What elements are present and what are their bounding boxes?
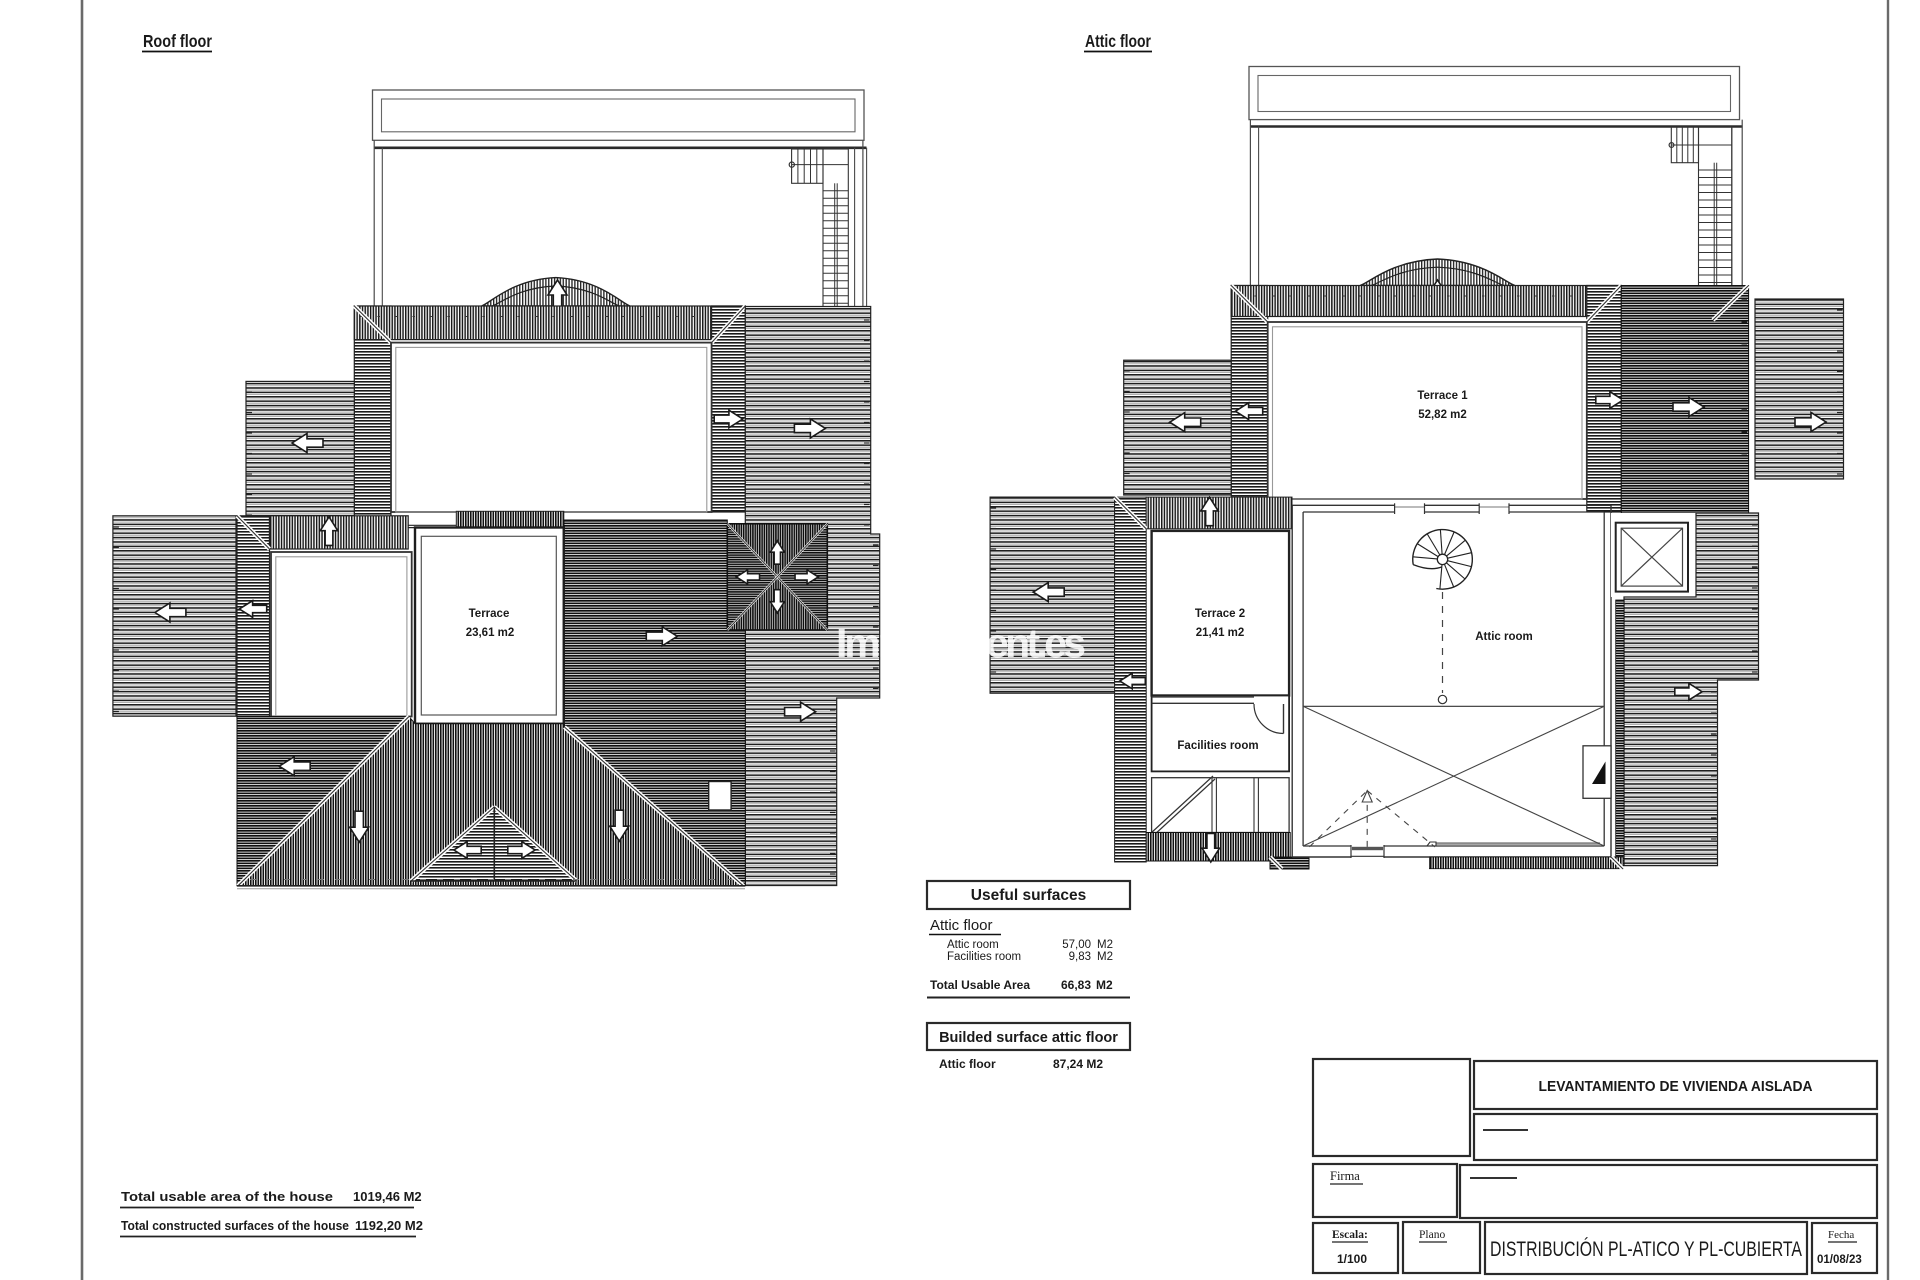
svg-text:Fecha: Fecha bbox=[1828, 1229, 1854, 1241]
svg-text:Useful surfaces: Useful surfaces bbox=[971, 887, 1086, 904]
svg-text:Terrace 2: Terrace 2 bbox=[1195, 608, 1245, 620]
svg-text:Total Usable Area: Total Usable Area bbox=[930, 978, 1030, 992]
svg-text:ent.es: ent.es bbox=[986, 620, 1086, 666]
svg-text:01/08/23: 01/08/23 bbox=[1817, 1254, 1862, 1266]
svg-text:Escala:: Escala: bbox=[1332, 1229, 1368, 1241]
svg-text:52,82 m2: 52,82 m2 bbox=[1418, 409, 1467, 421]
svg-text:Terrace: Terrace bbox=[469, 608, 510, 620]
svg-text:Immo: Immo bbox=[836, 620, 936, 666]
svg-text:Terrace 1: Terrace 1 bbox=[1417, 390, 1468, 402]
svg-text:Total usable area of the house: Total usable area of the house bbox=[121, 1190, 333, 1204]
svg-text:21,41 m2: 21,41 m2 bbox=[1196, 627, 1245, 639]
svg-text:Plano: Plano bbox=[1419, 1229, 1445, 1241]
svg-text:DISTRIBUCIÓN PL-ATICO Y PL-CUB: DISTRIBUCIÓN PL-ATICO Y PL-CUBIERTA bbox=[1490, 1238, 1802, 1261]
svg-text:66,83: 66,83 bbox=[1061, 978, 1091, 992]
svg-text:Attic room: Attic room bbox=[947, 939, 999, 951]
svg-text:M2: M2 bbox=[1097, 951, 1113, 963]
svg-text:LEVANTAMIENTO DE VIVIENDA AISL: LEVANTAMIENTO DE VIVIENDA AISLADA bbox=[1539, 1078, 1813, 1095]
svg-text:Facilities room: Facilities room bbox=[947, 951, 1021, 963]
svg-text:M2: M2 bbox=[1097, 939, 1113, 951]
svg-text:Attic room: Attic room bbox=[1475, 631, 1533, 643]
svg-text:Firma: Firma bbox=[1330, 1169, 1360, 1183]
svg-text:57,00: 57,00 bbox=[1062, 939, 1091, 951]
svg-text:M2: M2 bbox=[1096, 978, 1113, 992]
svg-text:1192,20 M2: 1192,20 M2 bbox=[355, 1218, 423, 1233]
svg-text:9,83: 9,83 bbox=[1069, 951, 1091, 963]
svg-text:Roof floor: Roof floor bbox=[143, 31, 212, 51]
svg-text:Builded surface attic floor: Builded surface attic floor bbox=[939, 1030, 1118, 1046]
svg-text:Attic floor: Attic floor bbox=[930, 917, 993, 934]
svg-text:1019,46 M2: 1019,46 M2 bbox=[353, 1189, 422, 1204]
svg-text:Facilities room: Facilities room bbox=[1177, 740, 1258, 752]
svg-text:87,24 M2: 87,24 M2 bbox=[1053, 1057, 1103, 1071]
svg-text:Attic floor: Attic floor bbox=[939, 1057, 996, 1071]
svg-text:Total constructed surfaces of: Total constructed surfaces of the house bbox=[121, 1219, 349, 1233]
svg-text:Attic floor: Attic floor bbox=[1085, 31, 1151, 51]
svg-text:1/100: 1/100 bbox=[1337, 1252, 1367, 1266]
svg-text:23,61 m2: 23,61 m2 bbox=[466, 627, 515, 639]
